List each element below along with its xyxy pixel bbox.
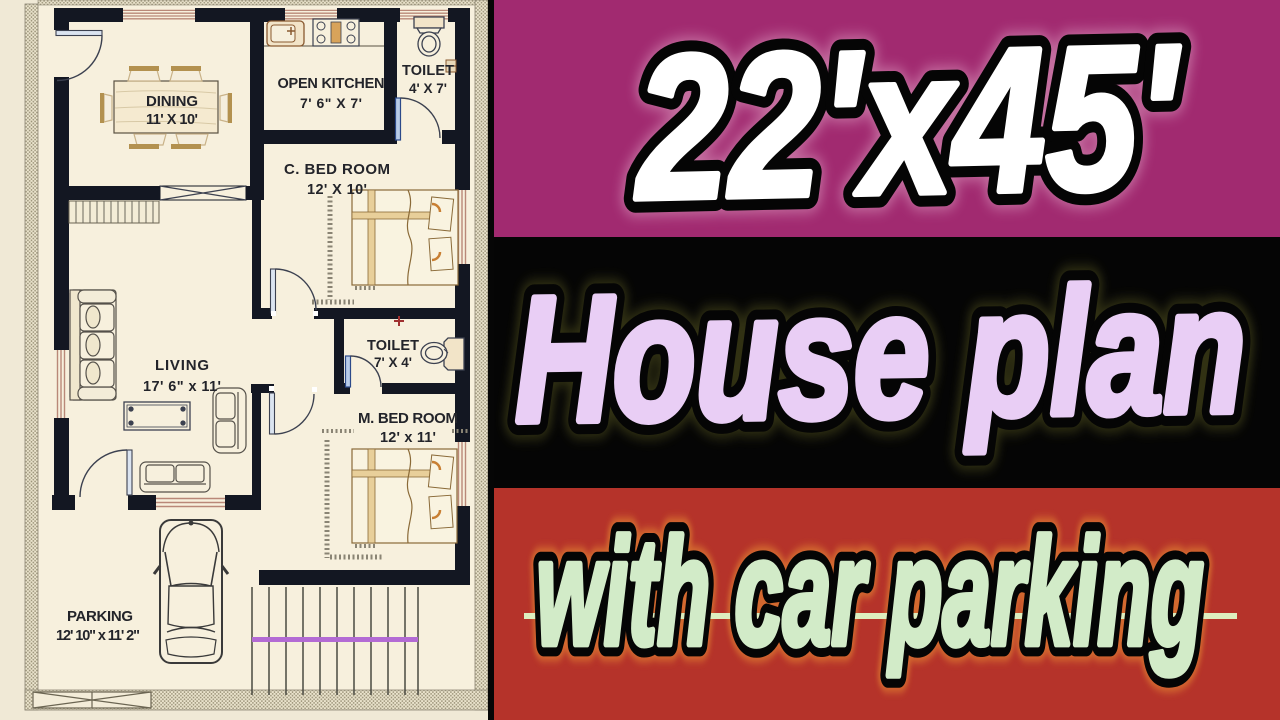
svg-text:TOILET: TOILET bbox=[402, 63, 454, 79]
svg-text:12' x 11': 12' x 11' bbox=[380, 430, 436, 446]
svg-text:7' 6" X 7': 7' 6" X 7' bbox=[300, 95, 362, 111]
svg-text:DINING: DINING bbox=[146, 93, 198, 110]
svg-text:4' X 7': 4' X 7' bbox=[409, 81, 447, 96]
svg-text:22'x45': 22'x45' bbox=[631, 2, 1184, 243]
svg-text:House plan: House plan bbox=[513, 250, 1247, 459]
svg-text:OPEN KITCHEN: OPEN KITCHEN bbox=[278, 76, 385, 92]
svg-text:PARKING: PARKING bbox=[67, 608, 133, 625]
svg-text:LIVING: LIVING bbox=[155, 357, 209, 374]
svg-text:7' X 4': 7' X 4' bbox=[374, 355, 412, 370]
svg-text:with car parking: with car parking bbox=[536, 508, 1204, 677]
svg-text:17' 6" x 11': 17' 6" x 11' bbox=[143, 379, 221, 395]
svg-text:TOILET: TOILET bbox=[367, 338, 419, 354]
svg-text:11' X 10': 11' X 10' bbox=[146, 112, 198, 128]
svg-text:C. BED ROOM: C. BED ROOM bbox=[284, 161, 390, 178]
svg-text:12' 10" x 11' 2": 12' 10" x 11' 2" bbox=[56, 628, 140, 644]
svg-text:M. BED ROOM: M. BED ROOM bbox=[358, 410, 458, 427]
svg-text:12' X 10': 12' X 10' bbox=[307, 182, 367, 198]
